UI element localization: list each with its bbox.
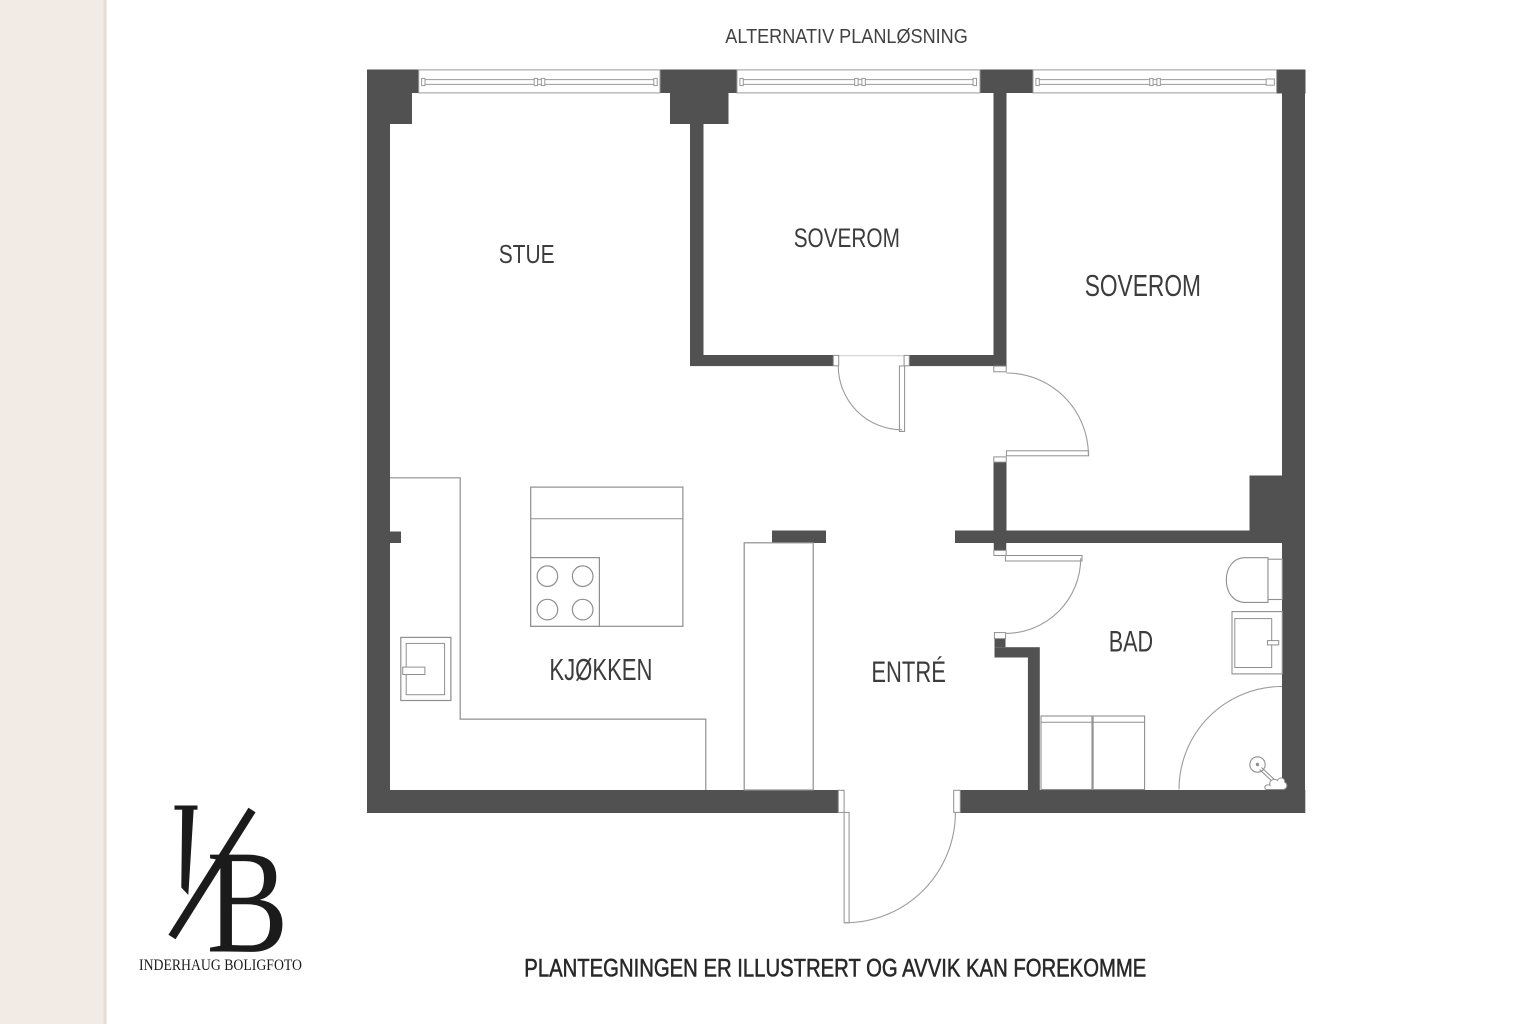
svg-text:STUE: STUE — [499, 239, 555, 269]
svg-text:INDERHAUG BOLIGFOTO: INDERHAUG BOLIGFOTO — [139, 957, 302, 974]
svg-text:SOVEROM: SOVEROM — [794, 223, 900, 253]
svg-text:BAD: BAD — [1109, 626, 1153, 659]
svg-text:ALTERNATIV PLANLØSNING: ALTERNATIV PLANLØSNING — [725, 25, 968, 48]
svg-text:PLANTEGNINGEN ER ILLUSTRERT OG: PLANTEGNINGEN ER ILLUSTRERT OG AVVIK KAN… — [524, 955, 1146, 983]
svg-text:ENTRÉ: ENTRÉ — [871, 656, 946, 689]
svg-text:KJØKKEN: KJØKKEN — [549, 653, 652, 687]
svg-text:SOVEROM: SOVEROM — [1085, 269, 1201, 303]
